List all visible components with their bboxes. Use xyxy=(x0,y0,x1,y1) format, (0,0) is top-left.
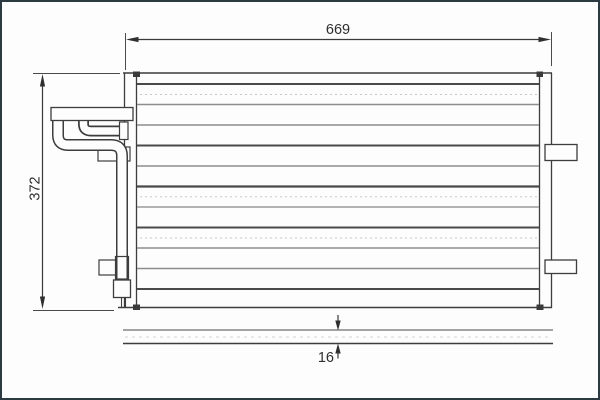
drawing-background xyxy=(0,0,600,400)
mounting-lug-bottom xyxy=(545,260,577,274)
drawing-canvas: 669 372 16 xyxy=(0,0,600,400)
mounting-lug-top xyxy=(545,145,577,161)
dim-height-label: 372 xyxy=(28,176,44,200)
dim-thickness-label: 16 xyxy=(318,350,334,366)
mounting-bracket-bar xyxy=(51,108,133,121)
pipe-flange xyxy=(120,122,129,140)
receiver-fitting xyxy=(114,280,131,298)
condenser-technical-drawing: 669 372 16 xyxy=(0,0,600,400)
pipe-lug xyxy=(99,260,116,275)
dim-width-label: 669 xyxy=(326,22,350,38)
